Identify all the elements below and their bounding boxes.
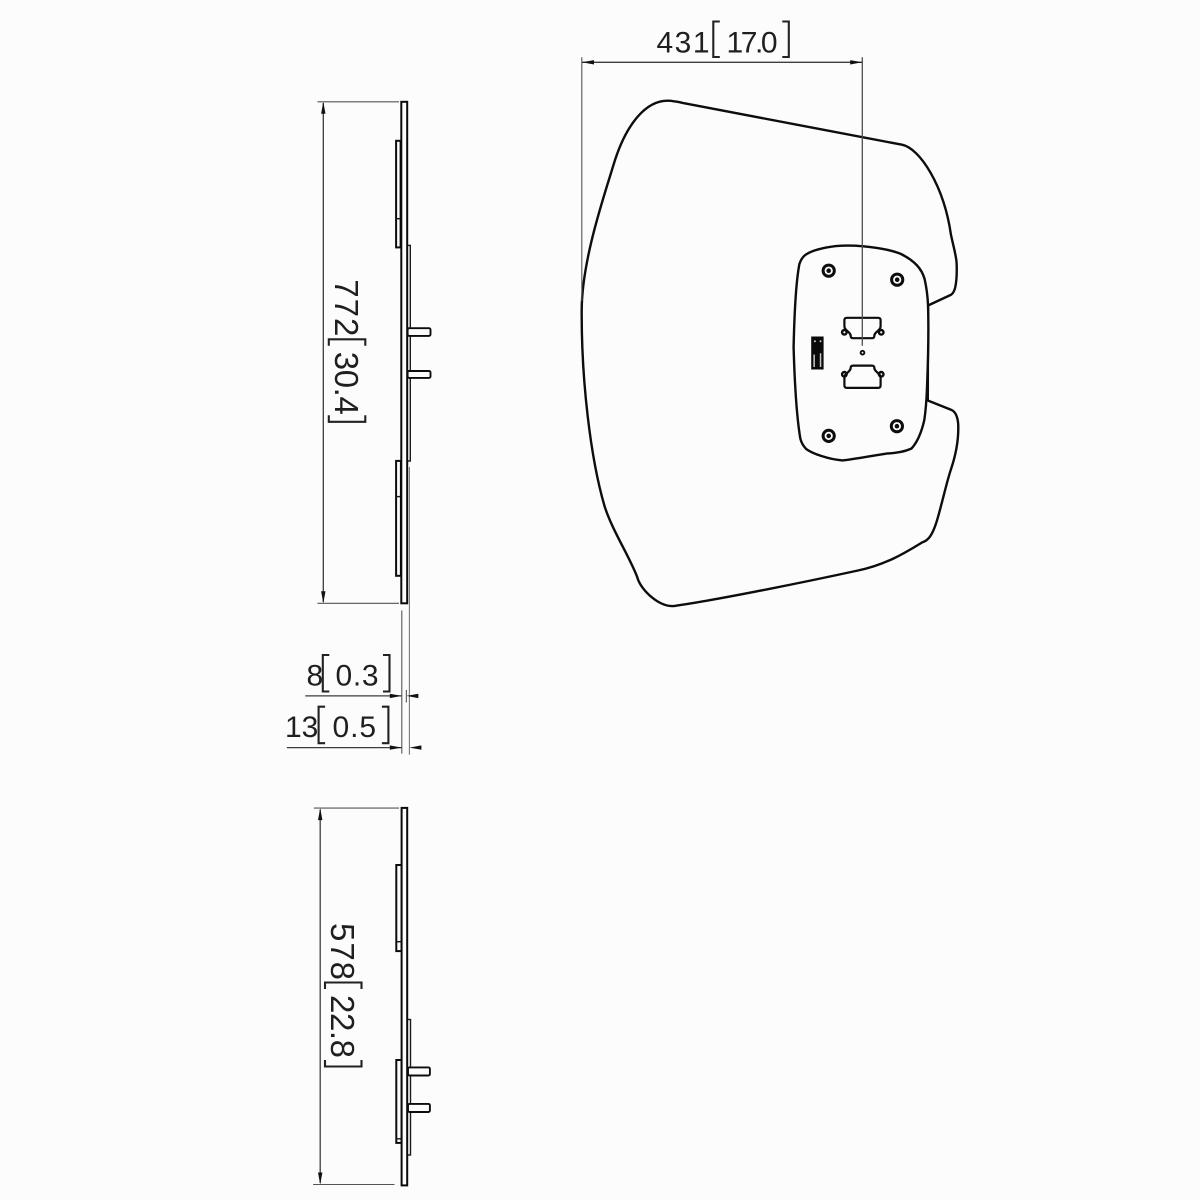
svg-text:8: 8 <box>307 660 324 693</box>
svg-text:0.3: 0.3 <box>336 660 379 693</box>
svg-text:578: 578 <box>324 923 361 980</box>
svg-text:431: 431 <box>657 27 711 60</box>
svg-text:13: 13 <box>285 711 318 744</box>
svg-text:17.0: 17.0 <box>727 27 778 60</box>
svg-text:22.8: 22.8 <box>324 995 361 1058</box>
svg-text:30.4: 30.4 <box>328 352 365 415</box>
svg-text:772: 772 <box>328 279 365 336</box>
svg-text:0.5: 0.5 <box>333 711 377 744</box>
